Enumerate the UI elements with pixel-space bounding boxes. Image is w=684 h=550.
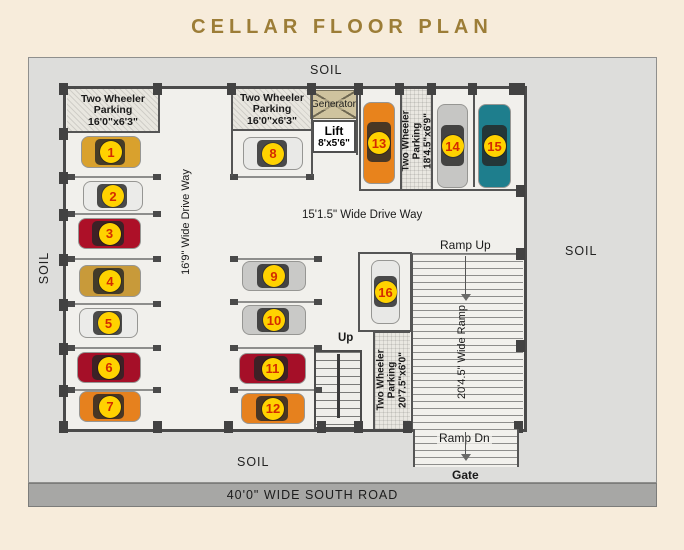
car-7: 7 bbox=[80, 392, 140, 421]
two-wheeler-zone-top-left: Two Wheeler Parking 16'0"x6'3" bbox=[67, 89, 159, 133]
interior-wall bbox=[473, 89, 475, 187]
stall-divider bbox=[231, 258, 321, 260]
car-number-badge: 7 bbox=[99, 396, 121, 418]
wall-column bbox=[403, 421, 412, 433]
wall-column bbox=[59, 385, 68, 397]
car-number-badge: 4 bbox=[99, 270, 121, 292]
wall-column bbox=[516, 83, 525, 95]
two-wheeler-zone-right-label: Two Wheeler Parking 18'4.5"x6'9" bbox=[401, 111, 434, 172]
car-16: 16 bbox=[372, 261, 399, 323]
wall-column bbox=[516, 340, 525, 352]
stall-divider bbox=[68, 389, 160, 391]
ramp-arrow-head-top bbox=[461, 294, 471, 301]
stall-divider bbox=[231, 389, 321, 391]
wall-column bbox=[427, 83, 436, 95]
car-5: 5 bbox=[80, 309, 137, 337]
generator-room: Generator bbox=[310, 90, 357, 119]
two-wheeler-zone-top-mid-label: Two Wheeler Parking 16'0"x6'3" bbox=[240, 93, 304, 128]
wall-column bbox=[468, 83, 477, 95]
wall-column bbox=[153, 421, 162, 433]
gate-label: Gate bbox=[450, 468, 481, 482]
wall-column bbox=[59, 421, 68, 433]
wall-column bbox=[354, 421, 363, 433]
wall-column bbox=[59, 83, 68, 95]
car-number-badge: 5 bbox=[98, 312, 120, 334]
ramp-arrow-line-bottom bbox=[465, 432, 466, 454]
car-14: 14 bbox=[438, 105, 467, 187]
two-wheeler-zone-bottom-label: Two Wheeler Parking 20'7.5"x6'0" bbox=[376, 350, 409, 411]
interior-wall bbox=[400, 89, 402, 191]
ramp-up-label: Ramp Up bbox=[438, 238, 493, 252]
car-8: 8 bbox=[244, 138, 302, 169]
interior-wall bbox=[356, 89, 358, 155]
wall-column bbox=[59, 172, 68, 184]
car-number-badge: 12 bbox=[262, 398, 284, 420]
wall-column bbox=[59, 128, 68, 140]
wall-column bbox=[516, 185, 525, 197]
car-6: 6 bbox=[78, 353, 140, 382]
interior-wall bbox=[373, 331, 375, 429]
wall-column bbox=[59, 254, 68, 266]
driveway-horizontal-label: 15'1.5" Wide Drive Way bbox=[302, 209, 422, 221]
car-number-badge: 11 bbox=[262, 358, 284, 380]
car-9: 9 bbox=[243, 262, 305, 290]
ramp-width-label: 20'4.5" Wide Ramp bbox=[456, 305, 468, 399]
car-3: 3 bbox=[79, 219, 140, 248]
car-4: 4 bbox=[80, 266, 140, 296]
two-wheeler-zone-top-left-label: Two Wheeler Parking 16'0"x6'3" bbox=[81, 94, 145, 129]
car-number-badge: 6 bbox=[98, 357, 120, 379]
stall-divider bbox=[68, 303, 160, 305]
car-number-badge: 9 bbox=[263, 265, 285, 287]
car-number-badge: 16 bbox=[375, 281, 397, 303]
interior-wall bbox=[158, 89, 160, 133]
generator-label: Generator bbox=[311, 99, 356, 110]
interior-wall bbox=[231, 89, 233, 176]
stall-divider bbox=[68, 258, 160, 260]
lift-dimension: 8'x5'6" bbox=[314, 138, 354, 149]
ramp-arrow-head-bottom bbox=[461, 454, 471, 461]
wall-column bbox=[516, 248, 525, 260]
car-number-badge: 15 bbox=[484, 135, 506, 157]
interior-wall bbox=[359, 189, 524, 191]
wall-column bbox=[59, 343, 68, 355]
stall-divider bbox=[231, 347, 321, 349]
wall-column bbox=[59, 209, 68, 221]
wall-column bbox=[224, 421, 233, 433]
car-number-badge: 2 bbox=[102, 185, 124, 207]
ramp-arrow-line-top bbox=[465, 256, 466, 294]
staircase-rail bbox=[337, 354, 340, 418]
stall-divider bbox=[231, 301, 321, 303]
car-1: 1 bbox=[82, 137, 140, 167]
lift: Lift 8'x5'6" bbox=[312, 120, 356, 153]
wall-column bbox=[59, 299, 68, 311]
wall-column bbox=[395, 83, 404, 95]
interior-wall bbox=[311, 89, 313, 176]
car-2: 2 bbox=[84, 182, 142, 210]
interior-wall bbox=[67, 131, 159, 133]
car-10: 10 bbox=[243, 306, 305, 334]
stall-divider bbox=[68, 176, 160, 178]
stall-divider bbox=[68, 213, 160, 215]
driveway-vertical-label: 16'9" Wide Drive Way bbox=[180, 169, 192, 275]
wall-column bbox=[153, 83, 162, 95]
car-11: 11 bbox=[240, 354, 305, 383]
interior-wall bbox=[233, 129, 311, 131]
wall-column bbox=[354, 83, 363, 95]
interior-wall bbox=[431, 89, 433, 191]
car-number-badge: 3 bbox=[99, 223, 121, 245]
car-12: 12 bbox=[242, 394, 304, 423]
two-wheeler-zone-top-mid: Two Wheeler Parking 16'0"x6'3" bbox=[233, 89, 311, 131]
car-number-badge: 10 bbox=[263, 309, 285, 331]
car-number-badge: 13 bbox=[368, 132, 390, 154]
lift-label: Lift bbox=[314, 124, 354, 138]
wall-column bbox=[227, 83, 236, 95]
wall-column bbox=[307, 83, 316, 95]
floor-plan: Two Wheeler Parking 16'0"x6'3" Two Wheel… bbox=[0, 0, 684, 550]
car-13: 13 bbox=[364, 103, 394, 183]
car-number-badge: 1 bbox=[100, 141, 122, 163]
stall-divider bbox=[68, 347, 160, 349]
stairs-up-label: Up bbox=[338, 332, 353, 344]
car-number-badge: 14 bbox=[442, 135, 464, 157]
stall-divider bbox=[231, 176, 313, 178]
car-15: 15 bbox=[479, 105, 510, 187]
interior-wall bbox=[359, 89, 361, 189]
car-number-badge: 8 bbox=[262, 143, 284, 165]
wall-column bbox=[317, 421, 326, 433]
